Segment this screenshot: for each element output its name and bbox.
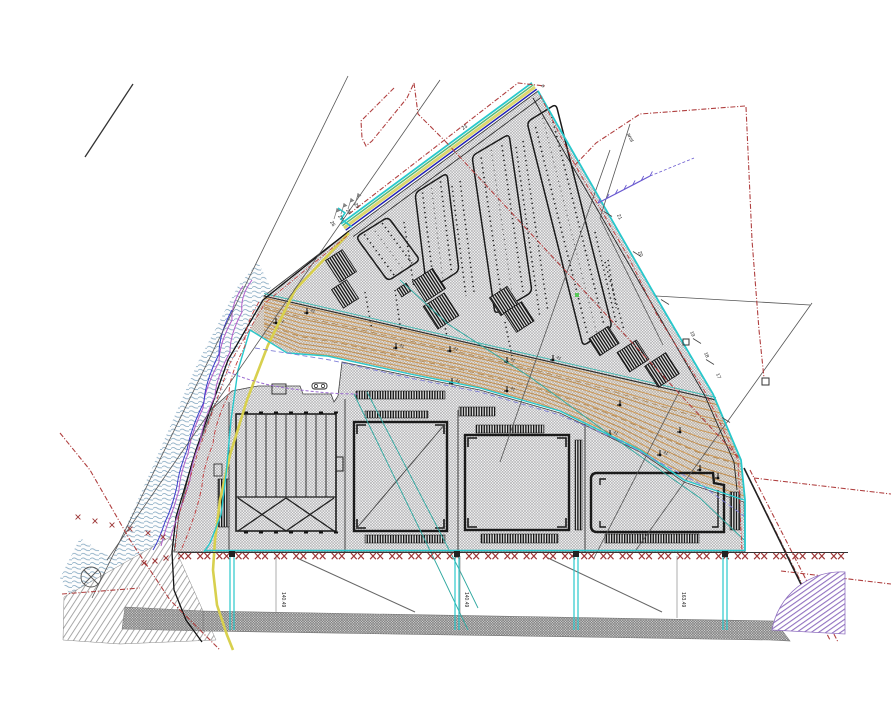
svg-text:163.49: 163.49: [680, 592, 686, 608]
svg-text:140.49: 140.49: [280, 592, 286, 608]
svg-text:140.49: 140.49: [463, 592, 469, 608]
